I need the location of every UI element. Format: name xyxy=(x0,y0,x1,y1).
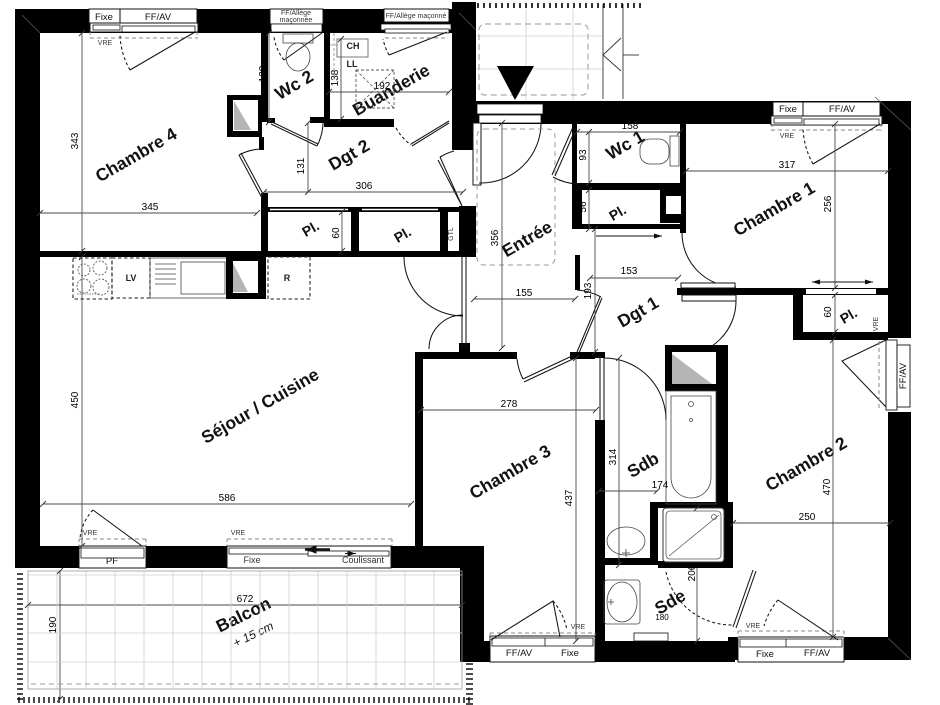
svg-text:158: 158 xyxy=(622,121,639,132)
svg-text:Fixe: Fixe xyxy=(779,104,797,115)
svg-text:FF/Allège maçonné: FF/Allège maçonné xyxy=(386,13,447,20)
svg-text:VRE: VRE xyxy=(873,316,880,331)
svg-text:60: 60 xyxy=(823,306,834,318)
svg-text:VRE: VRE xyxy=(231,530,246,537)
svg-text:470: 470 xyxy=(822,478,833,495)
svg-text:60: 60 xyxy=(331,227,342,239)
svg-text:56: 56 xyxy=(578,201,589,213)
svg-text:R: R xyxy=(284,273,291,283)
svg-text:306: 306 xyxy=(356,181,373,192)
svg-text:155: 155 xyxy=(516,288,533,299)
svg-text:278: 278 xyxy=(501,399,518,410)
svg-text:FF/AV: FF/AV xyxy=(506,648,533,659)
svg-text:Fixe: Fixe xyxy=(756,649,774,660)
svg-text:437: 437 xyxy=(564,489,575,506)
svg-text:maçonnée: maçonnée xyxy=(280,17,313,24)
svg-text:PF: PF xyxy=(106,556,118,567)
svg-text:VRE: VRE xyxy=(98,40,113,47)
svg-text:LV: LV xyxy=(126,273,137,283)
svg-text:VRE: VRE xyxy=(83,530,98,537)
svg-text:180: 180 xyxy=(655,613,669,622)
svg-text:CH: CH xyxy=(347,41,360,51)
svg-text:GTL: GTL xyxy=(448,227,455,241)
svg-text:343: 343 xyxy=(70,132,81,149)
svg-text:Fixe: Fixe xyxy=(95,12,113,23)
svg-text:VRE: VRE xyxy=(571,624,586,631)
svg-text:250: 250 xyxy=(799,512,816,523)
svg-text:586: 586 xyxy=(219,493,236,504)
svg-text:FF/Allège: FF/Allège xyxy=(281,10,311,17)
svg-text:VRE: VRE xyxy=(746,623,761,630)
svg-text:450: 450 xyxy=(70,391,81,408)
svg-text:256: 256 xyxy=(823,195,834,212)
svg-text:345: 345 xyxy=(142,202,159,213)
svg-text:LL: LL xyxy=(347,59,358,69)
svg-text:356: 356 xyxy=(490,229,501,246)
svg-text:FF/AV: FF/AV xyxy=(145,12,172,23)
svg-text:138: 138 xyxy=(330,69,341,86)
svg-text:Fixe: Fixe xyxy=(243,555,260,565)
svg-text:FF/AV: FF/AV xyxy=(804,648,831,659)
svg-text:314: 314 xyxy=(608,448,619,465)
svg-text:317: 317 xyxy=(779,160,796,171)
svg-text:FF/AV: FF/AV xyxy=(829,104,856,115)
svg-text:193: 193 xyxy=(583,282,594,299)
svg-text:93: 93 xyxy=(578,149,589,161)
svg-text:672: 672 xyxy=(237,594,254,605)
svg-text:Coulissant: Coulissant xyxy=(342,555,385,565)
svg-text:FF/AV: FF/AV xyxy=(898,362,909,389)
svg-text:192: 192 xyxy=(374,81,391,92)
svg-text:Fixe: Fixe xyxy=(561,648,579,659)
svg-text:153: 153 xyxy=(621,266,638,277)
svg-text:138: 138 xyxy=(258,65,269,82)
svg-text:VRE: VRE xyxy=(780,133,795,140)
svg-text:131: 131 xyxy=(296,157,307,174)
